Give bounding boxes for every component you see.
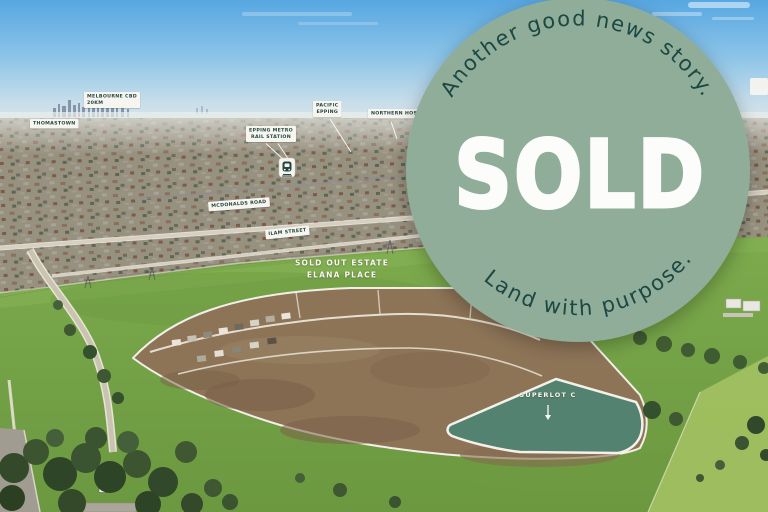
sold-badge: Another good news story. SOLD Land with … — [0, 0, 768, 512]
badge-sold-text: SOLD — [454, 121, 706, 230]
aerial-property-photo: MELBOURNE CBD 20KM THOMASTOWN EPPING MET… — [0, 0, 768, 512]
